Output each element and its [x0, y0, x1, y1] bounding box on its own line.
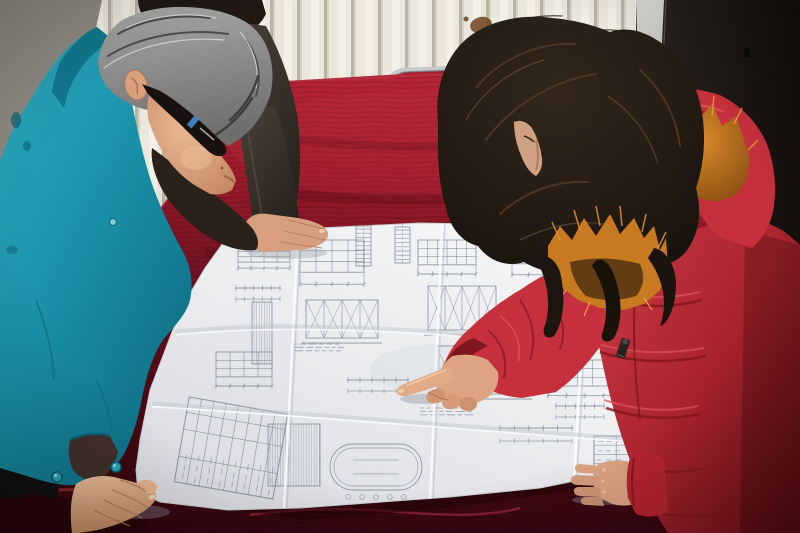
scene-canvas: [0, 0, 800, 533]
vignette: [0, 0, 800, 533]
photo-scene: Two workers review a large folded engine…: [0, 0, 800, 533]
